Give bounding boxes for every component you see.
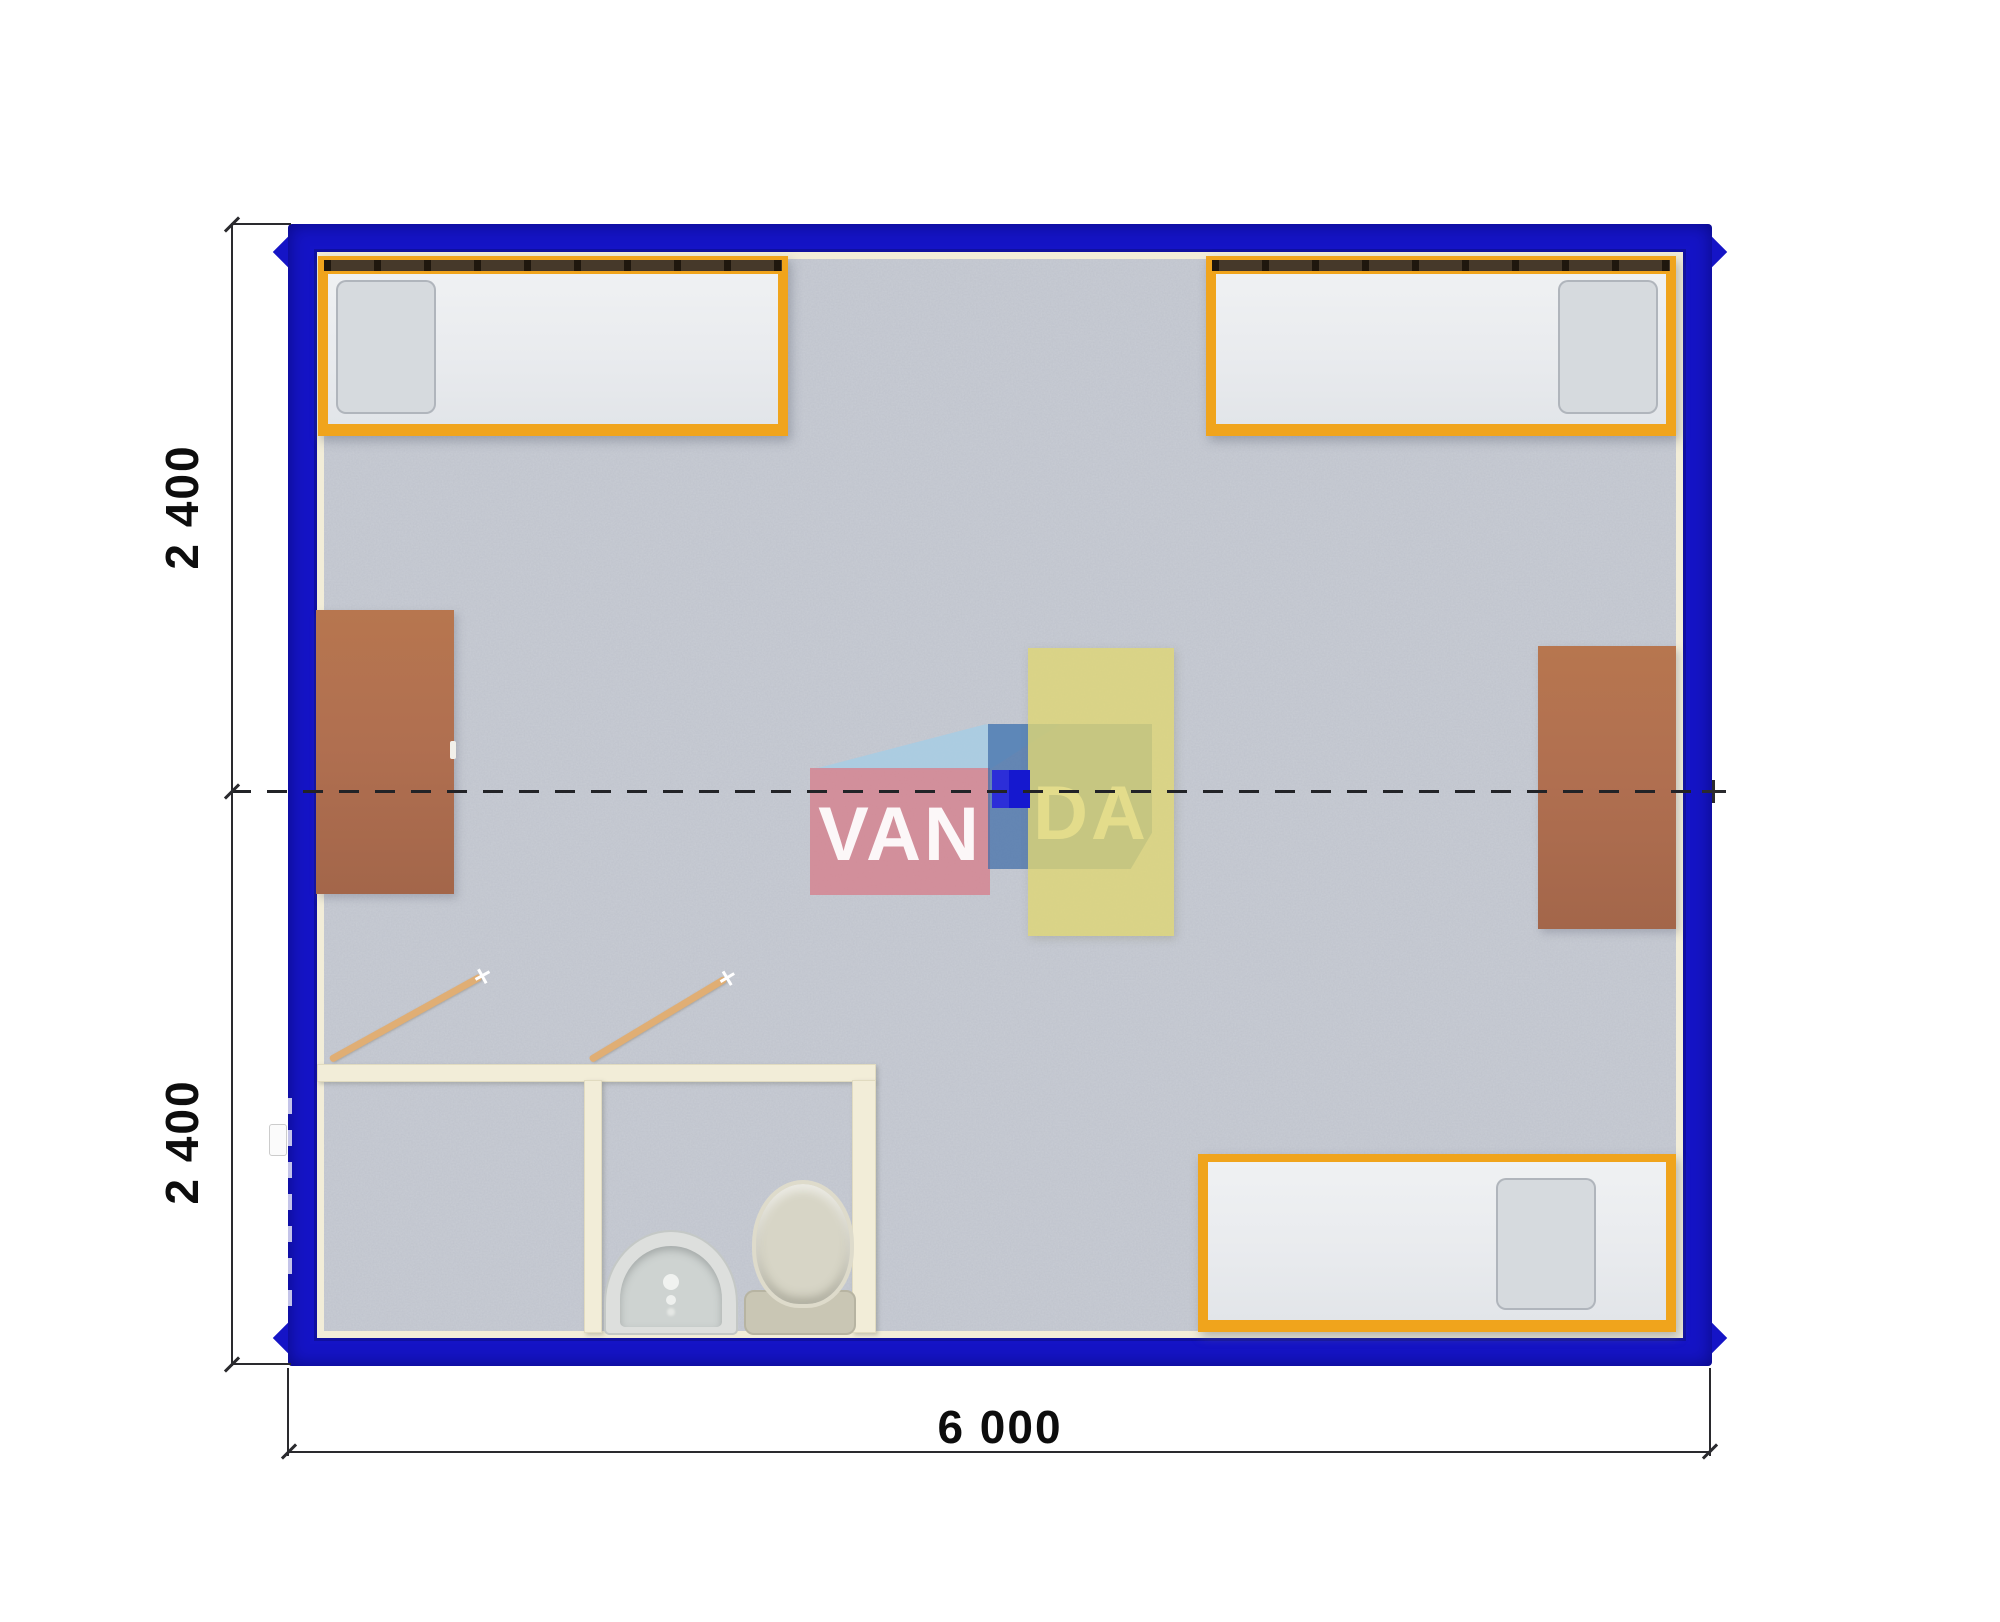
center-marker (992, 770, 1030, 808)
mattress (1208, 1162, 1666, 1320)
dimension-extension-right (1709, 1368, 1711, 1456)
floor-plan-canvas: VAN DA 2 400 2 400 6 000 (0, 0, 2000, 1622)
desk-knob (450, 741, 456, 759)
pillow (1558, 280, 1658, 414)
bed-bottom-right (1198, 1154, 1676, 1332)
dimension-label-width: 6 000 (880, 1400, 1120, 1454)
pillow (1496, 1178, 1596, 1310)
dimension-extension-left (287, 1368, 289, 1456)
toilet-icon (752, 1180, 854, 1308)
entry-door-handle (269, 1124, 287, 1156)
dimension-extension-bottom (231, 1363, 291, 1365)
vanda-logo-front-face: VAN (810, 768, 990, 895)
dimension-label-height-lower: 2 400 (155, 1022, 209, 1262)
dimension-line-vertical (231, 224, 233, 1366)
watermark-text-van: VAN (818, 791, 982, 873)
bed-top-right (1206, 256, 1676, 436)
bathroom-wall-divider (584, 1080, 602, 1333)
desk-left (316, 610, 454, 894)
washbasin-tap (663, 1274, 679, 1290)
bed-head-rail (1212, 260, 1670, 271)
centerline (231, 790, 1720, 793)
centerline-end-marker (1712, 780, 1715, 803)
bed-top-left (318, 256, 788, 436)
pillow (336, 280, 436, 414)
dimension-label-height-upper: 2 400 (155, 387, 209, 627)
dimension-extension-top (231, 223, 291, 225)
bed-head-rail (324, 260, 782, 271)
desk-right (1538, 646, 1676, 929)
bathroom-wall-right (852, 1080, 876, 1333)
